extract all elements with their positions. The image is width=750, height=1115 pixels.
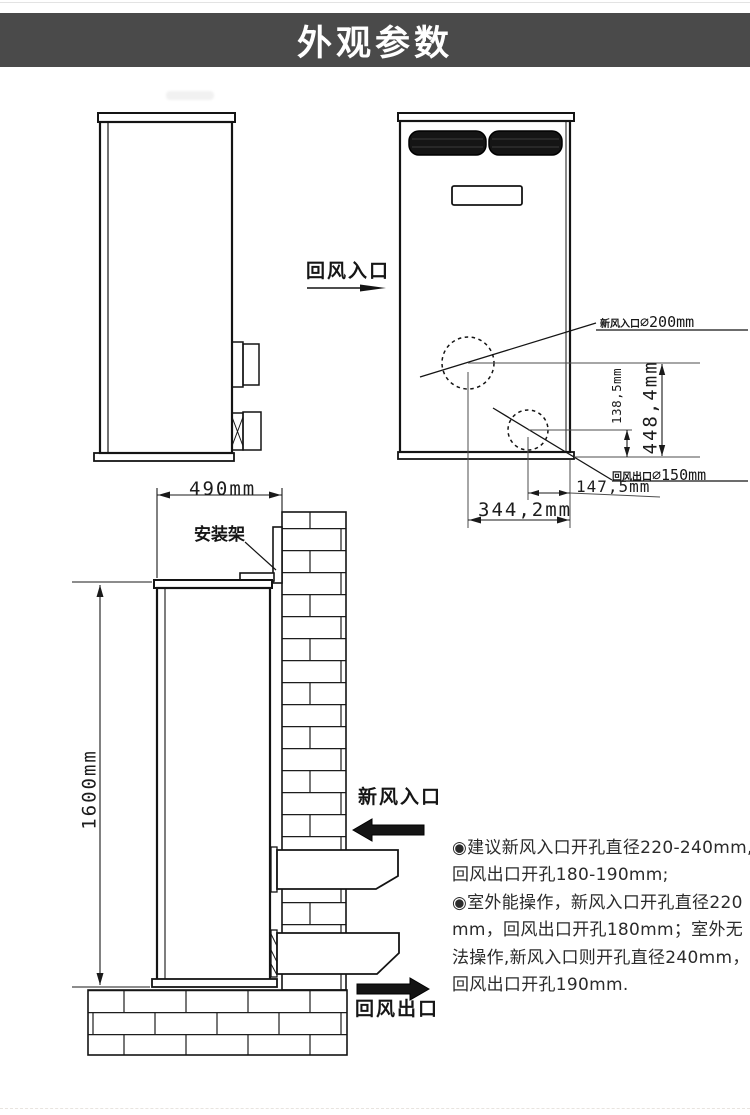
display-window: [452, 186, 522, 205]
dim-344-2: 344,2mm: [478, 500, 572, 521]
fresh-air-hole-value: ⌀200mm: [640, 313, 694, 331]
return-air-duct: [271, 930, 399, 977]
unit-side: [152, 580, 277, 987]
fresh-air-hole-label: 新风入口⌀200mm: [600, 313, 694, 331]
return-air-flow-arrow: [357, 978, 429, 1000]
note-line: 回风出口开孔180-190mm;: [452, 862, 750, 889]
fresh-air-duct: [271, 847, 398, 892]
brick-base: [88, 990, 347, 1055]
appearance-parameters-page: 外观参数: [0, 0, 750, 1115]
return-air-inlet-arrow: [307, 285, 386, 292]
drilling-notes: ◉建议新风入口开孔直径220-240mm, 回风出口开孔180-190mm; ◉…: [452, 835, 750, 999]
note-line: ◉室外能操作，新风入口开孔直径220: [452, 890, 750, 917]
note-line: 回风出口开孔190mm.: [452, 972, 750, 999]
dim-147-5: 147,5mm: [576, 478, 650, 496]
side-fresh-air-duct: [232, 342, 259, 387]
dim-138-5: 138,5mm: [610, 366, 624, 426]
return-air-inlet-label: 回风入口: [306, 261, 390, 282]
side-view: [94, 113, 261, 461]
dim-1600: 1600mm: [80, 748, 101, 830]
mounting-bracket: [240, 527, 282, 583]
fresh-air-flow-arrow: [353, 819, 424, 841]
dim-490: 490mm: [189, 479, 256, 500]
installation-view: [72, 488, 429, 1055]
bracket-label: 安装架: [194, 526, 245, 545]
note-line: 法操作,新风入口则开孔直径240mm，: [452, 945, 750, 972]
front-grille-left: [409, 131, 486, 155]
brick-wall: [282, 512, 346, 990]
dim-448-4: 448,4mm: [641, 368, 662, 454]
return-air-hole-value: ⌀150mm: [652, 466, 706, 484]
note-line: ◉建议新风入口开孔直径220-240mm,: [452, 835, 750, 862]
front-grille-right: [489, 131, 562, 155]
note-line: mm，回风出口开孔180mm；室外无: [452, 917, 750, 944]
fresh-air-inlet-label: 新风入口: [358, 787, 442, 808]
side-return-air-duct: [232, 412, 261, 450]
return-air-outlet-label: 回风出口: [355, 999, 439, 1020]
fresh-air-hole-prefix: 新风入口: [600, 319, 640, 330]
